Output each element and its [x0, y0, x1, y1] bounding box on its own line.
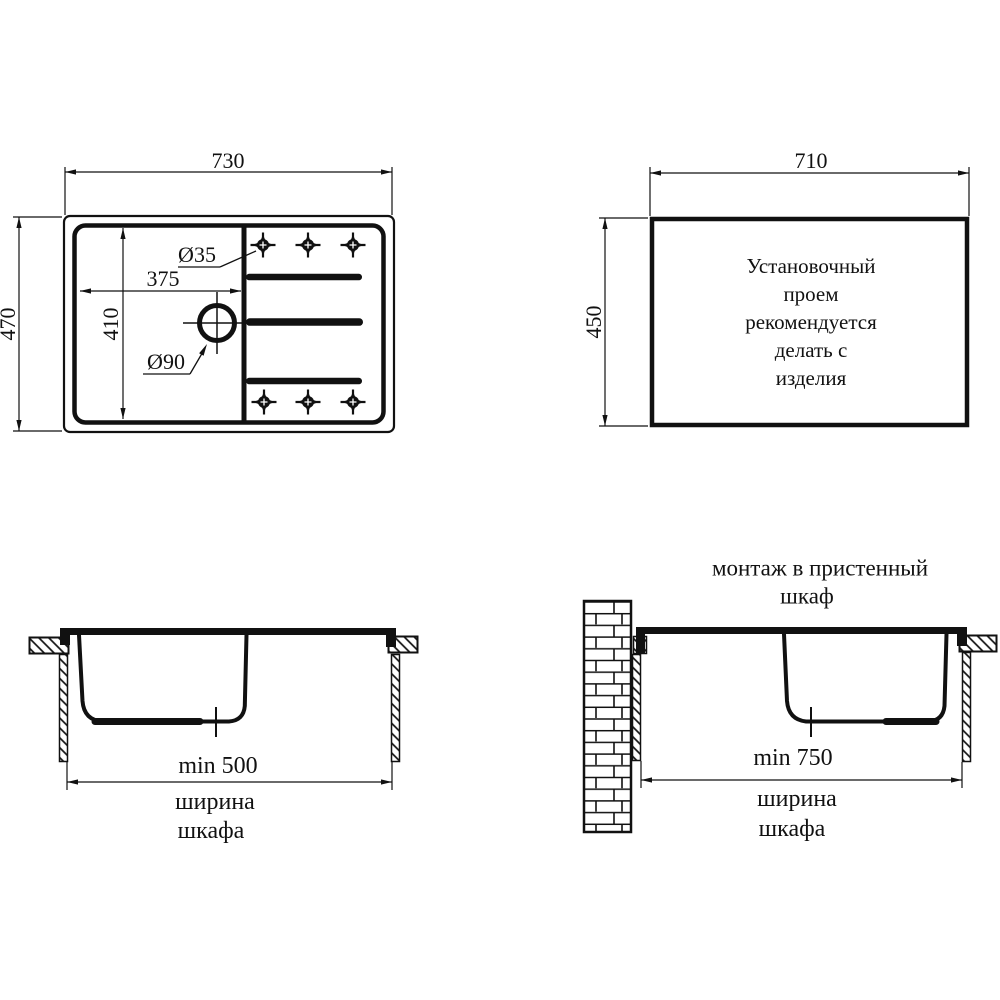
wall-cabinet-title-1: монтаж в пристенный [712, 557, 928, 580]
drain-hole [183, 292, 251, 354]
caption-cabinet-width-2: шкафа [759, 817, 826, 841]
wall-cabinet-title-2: шкаф [780, 585, 834, 608]
sink-top-view [13, 167, 394, 432]
dim-label-min-750: min 750 [753, 746, 832, 770]
cutout-note-line: рекомендуется [745, 308, 877, 336]
dim-label-375: 375 [147, 268, 180, 290]
cabinet-wall-right [392, 655, 400, 762]
cabinet-wall-left [60, 655, 68, 762]
countertop-section-right [389, 637, 418, 653]
countertop-section-left [30, 638, 69, 654]
bowl-profile [784, 634, 947, 722]
dim-label-410: 410 [100, 308, 122, 341]
sink-rim-profile [636, 627, 966, 634]
caption-cabinet-width-1: ширина [757, 787, 837, 811]
label-tap-hole-diameter: Ø35 [178, 244, 216, 266]
tap-hole-mark [296, 233, 321, 258]
tap-hole-mark [341, 233, 366, 258]
label-drain-diameter: Ø90 [147, 351, 185, 373]
dimension-730 [65, 167, 392, 215]
brick-wall [584, 601, 631, 832]
caption-cabinet-width-2: шкафа [178, 819, 245, 843]
dimension-710 [650, 167, 969, 216]
dim-label-730: 730 [212, 150, 245, 172]
countertop-section-right [960, 636, 997, 652]
cutout-note: Установочный проем рекомендуется делать … [745, 252, 877, 392]
installation-drawing-page: 730 470 375 410 Ø35 Ø90 710 450 Установо… [0, 0, 1000, 1000]
cabinet-wall-left [633, 655, 641, 761]
tap-hole-mark [251, 233, 276, 258]
cutout-note-line: делать с [745, 336, 877, 364]
dim-label-470: 470 [0, 308, 19, 341]
dim-label-710: 710 [795, 150, 828, 172]
dim-label-450: 450 [583, 306, 605, 339]
tap-hole-mark [296, 390, 321, 415]
cutout-note-line: Установочный [745, 252, 877, 280]
bowl-profile [79, 635, 247, 722]
cabinet-wall-right [963, 653, 971, 762]
caption-cabinet-width-1: ширина [175, 790, 255, 814]
tap-hole-mark [252, 390, 277, 415]
technical-drawing [0, 0, 1000, 1000]
sink-rim-profile [60, 628, 395, 635]
tap-hole-mark [341, 390, 366, 415]
dimension-470 [13, 217, 62, 431]
cutout-note-line: изделия [745, 364, 877, 392]
drainboard-ribs [246, 274, 363, 385]
cutout-note-line: проем [745, 280, 877, 308]
dim-label-min-500: min 500 [178, 754, 257, 778]
dimension-450 [599, 218, 648, 426]
